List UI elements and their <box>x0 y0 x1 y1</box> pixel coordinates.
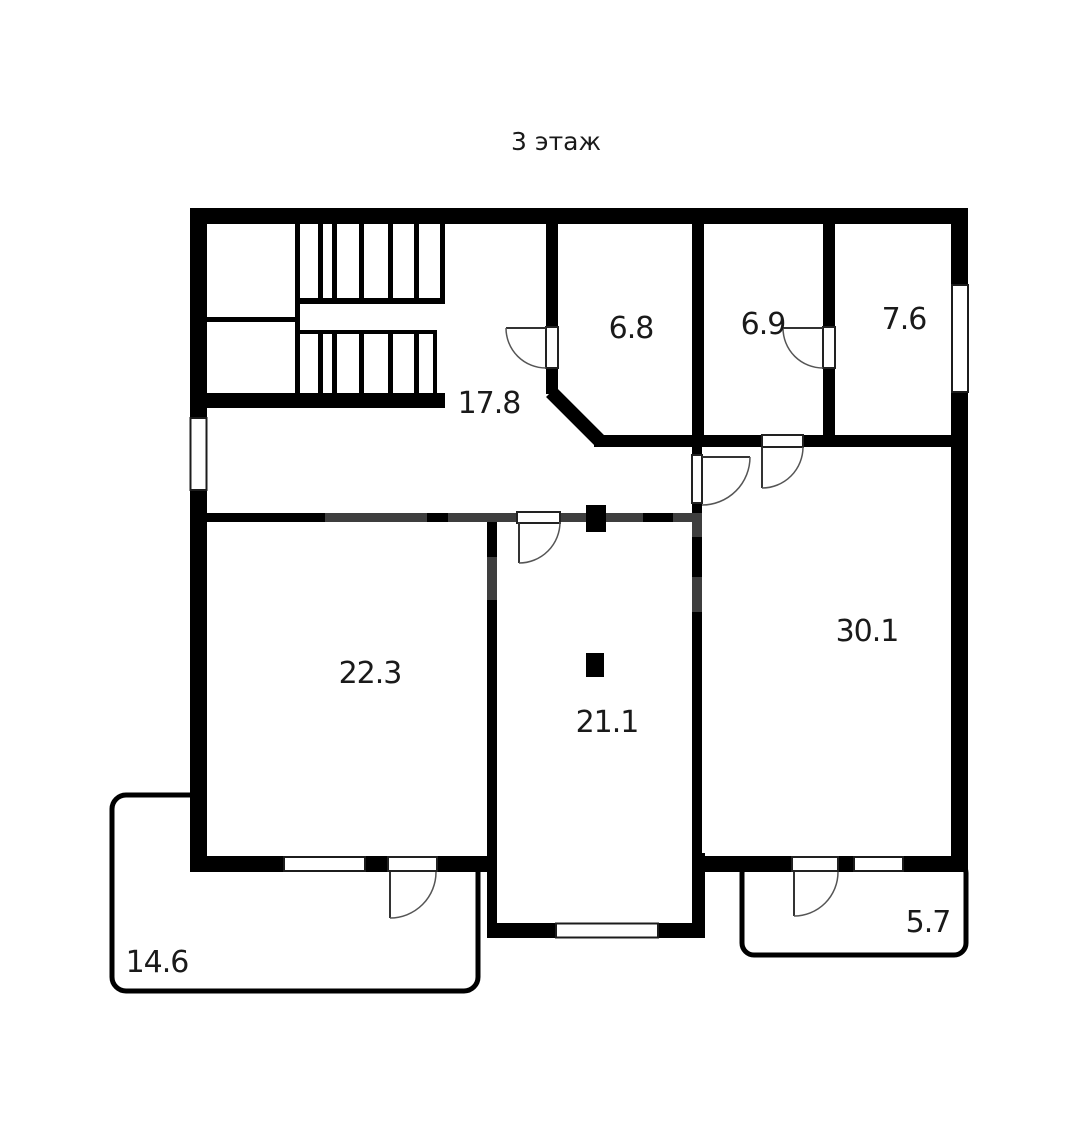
room-label-5-7: 5.7 <box>906 905 951 940</box>
wall-corridor-bottom-a <box>207 513 325 522</box>
stair-lower-top <box>297 330 437 334</box>
wall-right-upper <box>951 220 968 285</box>
wall-left-lower <box>190 490 207 872</box>
wall-door-jamb-a <box>692 447 702 455</box>
wall-corridor-top-a <box>594 435 762 447</box>
wall-faded-segment <box>448 513 517 522</box>
wall-stairwell-bottom <box>190 393 445 408</box>
wall-bottom-left-a <box>190 856 284 872</box>
building-body <box>190 208 968 872</box>
wall-68-69 <box>692 224 704 447</box>
stair-flight-edge <box>433 330 437 393</box>
column-on-wall <box>586 505 606 532</box>
wall-corridor-bottom-c <box>643 513 673 522</box>
door-leaf-balcony-146 <box>388 857 437 871</box>
wall-faded-segment <box>692 513 702 537</box>
door-leaf-69-76 <box>823 327 835 368</box>
floor-plan-drawing: 3 этаж 17.8 6.8 6.9 7.6 22.3 21.1 30.1 1… <box>0 0 1080 1122</box>
stair-tread <box>318 224 323 298</box>
room-label-30-1: 30.1 <box>836 614 899 649</box>
wall-69-76-lower <box>823 368 835 435</box>
window-room-30-1 <box>854 857 903 871</box>
column-freestanding <box>586 653 604 677</box>
wall-211-301-b <box>692 612 702 856</box>
wall-hall-68-upper <box>546 224 558 327</box>
wall-left-upper <box>190 220 207 418</box>
wall-right-lower <box>951 392 968 872</box>
room-label-hall: 17.8 <box>458 386 521 421</box>
stair-tread <box>359 334 364 393</box>
window-room-22-3 <box>284 857 365 871</box>
door-leaf-corridor-211 <box>517 512 560 523</box>
wall-faded-segment <box>560 513 586 522</box>
window-left-wall <box>191 418 207 490</box>
stair-landing-edge <box>295 224 300 393</box>
wall-faded-segment <box>673 513 692 522</box>
window-bay <box>556 924 658 938</box>
room-label-6-8: 6.8 <box>609 311 654 346</box>
floor-plan-page: 3 этаж 17.8 6.8 6.9 7.6 22.3 21.1 30.1 1… <box>0 0 1080 1122</box>
wall-bay-bottom-b <box>658 923 705 938</box>
floor-title: 3 этаж <box>511 127 601 156</box>
room-label-22-3: 22.3 <box>339 656 402 691</box>
wall-bottom-right-a <box>705 856 792 872</box>
stair-tread <box>318 334 323 393</box>
stair-tread <box>414 334 419 393</box>
wall-bottom-left-b <box>365 856 388 872</box>
wall-faded-segment <box>487 557 497 600</box>
wall-faded-segment <box>692 577 702 612</box>
stair-tread <box>332 224 337 298</box>
wall-corridor-bottom-b <box>427 513 448 522</box>
door-leaf-balcony-57 <box>792 857 838 871</box>
door-leaf-69-301 <box>762 435 803 447</box>
stair-flight-edge <box>440 224 445 298</box>
room-label-7-6: 7.6 <box>882 302 927 337</box>
wall-223-211-b <box>487 600 497 938</box>
wall-corridor-top-b <box>803 435 952 447</box>
stair-tread <box>388 334 393 393</box>
stair-landing-divider <box>207 317 297 322</box>
wall-69-76-upper <box>823 224 835 327</box>
wall-faded-segment <box>606 513 643 522</box>
door-leaf-hall-68 <box>546 327 558 368</box>
wall-bottom-right-b <box>838 856 854 872</box>
room-label-14-6: 14.6 <box>126 945 189 980</box>
wall-faded-segment <box>325 513 427 522</box>
wall-211-301-a <box>692 537 702 577</box>
stair-tread <box>388 224 393 298</box>
stair-tread <box>332 334 337 393</box>
wall-door-jamb-b <box>692 503 702 513</box>
building-fill <box>190 208 968 936</box>
wall-top <box>190 208 968 224</box>
room-label-21-1: 21.1 <box>576 705 639 740</box>
window-right-wall <box>952 285 968 392</box>
door-leaf-corridor-301 <box>692 455 702 503</box>
stair-tread <box>359 224 364 298</box>
room-label-6-9: 6.9 <box>741 307 786 342</box>
wall-223-211-a <box>487 522 497 557</box>
stair-tread <box>414 224 419 298</box>
wall-bottom-right-c <box>903 856 968 872</box>
stair-mid-bar <box>295 298 445 304</box>
wall-bay-bottom-a <box>487 923 555 938</box>
wall-bottom-left-c <box>437 856 487 872</box>
